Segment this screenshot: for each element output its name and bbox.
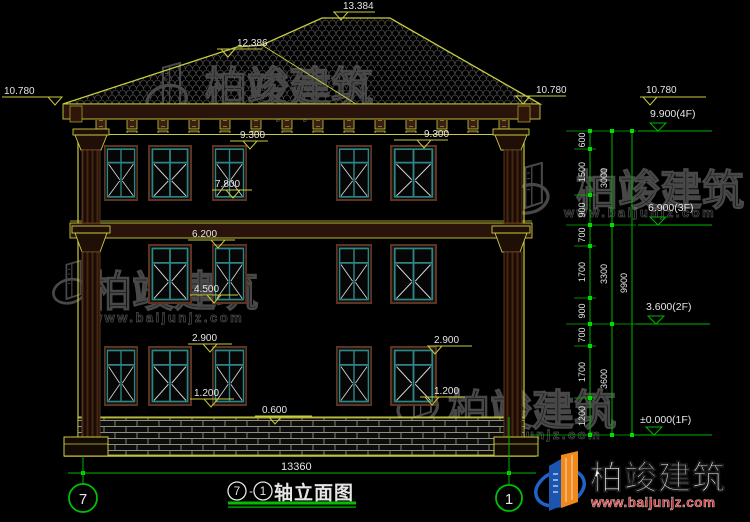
logo-building-blue xyxy=(549,459,561,511)
floor-band-2f xyxy=(70,223,532,238)
level-value: 1.200 xyxy=(194,388,219,399)
watermark-middle-right: 柏竣建筑 www.baijunjz.com xyxy=(507,163,744,220)
cad-elevation-canvas: 柏竣建筑 www.baijunjz.com 柏竣建筑 www.baijunjz.… xyxy=(0,0,750,522)
window xyxy=(105,347,138,405)
level-value: 1.200 xyxy=(434,386,459,397)
column-shaft xyxy=(504,252,522,437)
flag-eave-note: 10.780 xyxy=(640,85,706,105)
level-value: 9.300 xyxy=(424,129,449,140)
title-text: 轴立面图 xyxy=(274,481,354,504)
elevation-drawing: 柏竣建筑 www.baijunjz.com 柏竣建筑 www.baijunjz.… xyxy=(0,0,750,522)
window xyxy=(337,146,372,200)
column-shaft xyxy=(82,150,100,223)
column-capital xyxy=(75,233,107,252)
roof xyxy=(63,18,540,104)
eave-fascia xyxy=(63,104,540,119)
level-value: 2.900 xyxy=(434,335,459,346)
column-abacus xyxy=(493,129,529,135)
overall-width-dimension: 13360 xyxy=(281,461,312,473)
title-underline-thick xyxy=(228,502,356,505)
dentil-band xyxy=(78,120,524,133)
title-separator: - xyxy=(249,486,253,498)
level-value: 0.600 xyxy=(262,405,287,416)
drawing-title: 7 - 1 轴立面图 xyxy=(228,481,356,508)
dim-value: 3600 xyxy=(599,369,609,389)
window xyxy=(391,347,436,405)
level-value: 12.386 xyxy=(237,38,268,49)
bottom-dimension: 13360 xyxy=(68,461,536,475)
brick-plinth xyxy=(78,418,524,455)
windows-2f xyxy=(149,245,436,303)
level-value: 7.800 xyxy=(215,179,240,190)
level-value: 13.384 xyxy=(343,1,374,12)
windows-3f xyxy=(105,146,436,200)
title-axis-to: 1 xyxy=(260,486,266,498)
dim-value: 1200 xyxy=(577,406,587,426)
level-value: 6.200 xyxy=(192,229,217,240)
level-1f: ±0.000(1F) xyxy=(634,414,712,435)
windows-1f xyxy=(105,347,436,405)
floor-level-label: 3.600(2F) xyxy=(646,301,692,313)
total-height-dimension: 9900 xyxy=(619,273,629,293)
company-logo: 柏竣建筑 www.baijunjz.com xyxy=(531,451,726,513)
window xyxy=(391,146,436,200)
column-abacus xyxy=(73,129,109,135)
window xyxy=(149,347,191,405)
dim-value: 3000 xyxy=(599,168,609,188)
watermark-website: www.baijunjz.com xyxy=(91,310,244,325)
column-shaft xyxy=(82,252,100,437)
eave-corbel-right xyxy=(518,106,530,122)
column-shaft xyxy=(504,150,522,223)
floor-level-label: 9.900(4F) xyxy=(650,108,696,120)
level-markers-right: 10.780 9.900(4F) 6.900(3F) 3.600(2F) ±0.… xyxy=(634,85,712,435)
logo-building-orange xyxy=(561,451,578,508)
axis-bubble-left: 7 xyxy=(69,456,97,512)
window xyxy=(391,245,436,303)
floor-level-label: ±0.000(1F) xyxy=(640,414,691,426)
window xyxy=(149,146,191,200)
column-pedestal xyxy=(64,437,108,456)
level-value: 9.300 xyxy=(240,130,265,141)
dim-value: 1700 xyxy=(577,362,587,382)
dim-value: 3300 xyxy=(599,264,609,284)
level-value: 10.780 xyxy=(646,85,677,96)
axis-number: 7 xyxy=(79,491,87,508)
level-value: 10.780 xyxy=(536,85,567,96)
window xyxy=(105,146,138,200)
eave-corbel-left xyxy=(70,106,82,122)
level-4f: 9.900(4F) xyxy=(638,108,712,131)
title-underline-thin xyxy=(228,507,356,508)
dim-value: 1700 xyxy=(577,262,587,282)
column-abacus xyxy=(492,226,530,233)
level-value: 10.780 xyxy=(4,86,35,97)
dim-value: 700 xyxy=(577,227,587,242)
window xyxy=(337,245,372,303)
flag-eave-left: 10.780 xyxy=(2,86,62,105)
window xyxy=(337,347,372,405)
flag-ridge-main: 13.384 xyxy=(333,1,375,20)
column-pedestal xyxy=(494,437,538,456)
axis-number: 1 xyxy=(505,491,513,508)
roof-outline xyxy=(63,18,540,104)
dim-value: 900 xyxy=(577,202,587,217)
dim-value: 700 xyxy=(577,327,587,342)
column-capital xyxy=(495,233,527,252)
window xyxy=(149,245,191,303)
floor-level-label: 6.900(3F) xyxy=(648,202,694,214)
column-abacus xyxy=(72,226,110,233)
logo-website: www.baijunjz.com xyxy=(590,495,716,510)
level-2f: 3.600(2F) xyxy=(636,301,710,324)
column-capital xyxy=(75,135,107,150)
dim-value: 900 xyxy=(577,303,587,318)
eave-cornice xyxy=(63,104,540,135)
window xyxy=(213,146,247,200)
segment-dimensions: 600 1500 900 700 1700 900 700 1700 1200 xyxy=(577,132,587,426)
level-value: 4.500 xyxy=(194,284,219,295)
level-value: 2.900 xyxy=(192,333,217,344)
dim-value: 1500 xyxy=(577,162,587,182)
title-axis-from: 7 xyxy=(234,486,240,498)
column-capital xyxy=(495,135,527,150)
logo-company-name: 柏竣建筑 xyxy=(590,459,726,496)
dim-value: 600 xyxy=(577,132,587,147)
